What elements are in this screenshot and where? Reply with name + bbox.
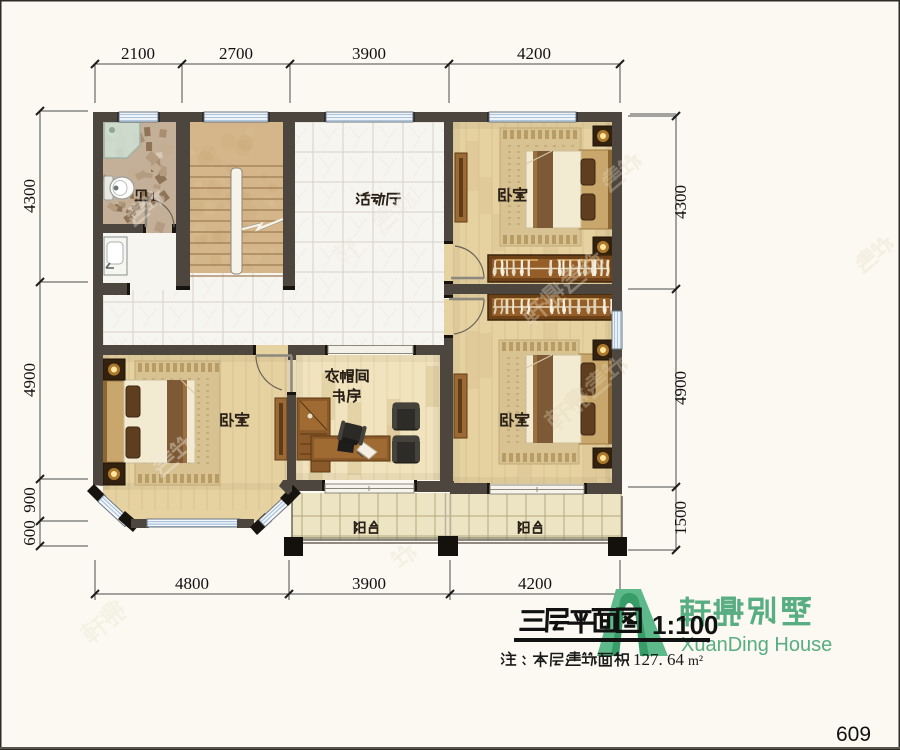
svg-text:4900: 4900 <box>20 363 39 397</box>
svg-text:m²: m² <box>688 654 703 669</box>
svg-text:1:100: 1:100 <box>652 610 719 640</box>
svg-text:4300: 4300 <box>20 179 39 213</box>
svg-text:4800: 4800 <box>175 574 209 593</box>
svg-text:609: 609 <box>836 723 871 746</box>
svg-text:3900: 3900 <box>352 574 386 593</box>
svg-text:2100: 2100 <box>121 44 155 63</box>
svg-text:127. 64: 127. 64 <box>633 650 685 669</box>
svg-text:3900: 3900 <box>352 44 386 63</box>
svg-text:1500: 1500 <box>671 501 690 535</box>
svg-text:600: 600 <box>20 520 39 546</box>
svg-text:4300: 4300 <box>671 185 690 219</box>
svg-text:4900: 4900 <box>671 371 690 405</box>
svg-text:4200: 4200 <box>518 574 552 593</box>
svg-text:2700: 2700 <box>219 44 253 63</box>
svg-text:4200: 4200 <box>517 44 551 63</box>
svg-text:900: 900 <box>20 487 39 513</box>
